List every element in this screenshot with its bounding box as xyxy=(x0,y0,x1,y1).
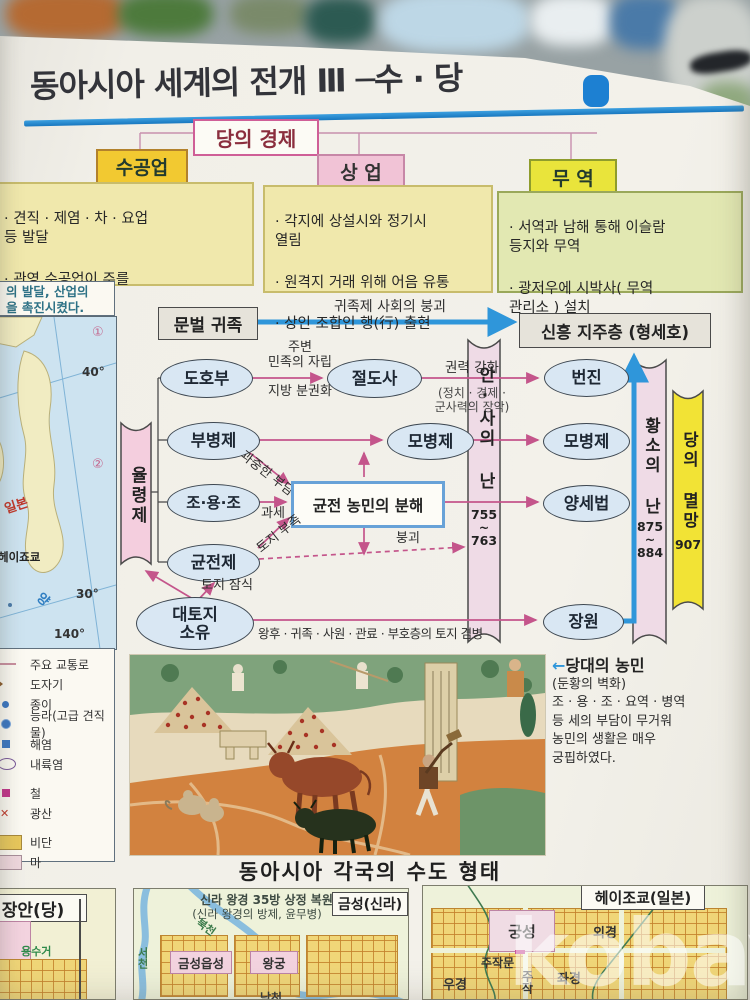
diagram-hwangso-years: 875 ~ 884 xyxy=(631,520,669,559)
heijokyo-palace-block: 궁성 xyxy=(489,910,555,952)
commerce-body: · 각지에 상설시와 정기시 열림 · 원격지 거래 위해 어음 유통 · 상인… xyxy=(263,185,493,293)
diagram-label-bonggoe: 붕괴 xyxy=(378,531,438,546)
heijokyo-left-capital-label: 좌경 xyxy=(557,968,581,987)
legend-label: 비단 xyxy=(30,834,52,851)
changan-panel: 장안(당) 용수거 xyxy=(0,888,116,1000)
diagram-label-gyeombyeong: 왕후 · 귀족 · 사원 · 관료 · 부호층의 토지 겸병 xyxy=(258,627,570,642)
legend-label: 주요 교통로 xyxy=(30,656,89,673)
diagram-node-gyunjeonje: 균전제 xyxy=(167,544,260,582)
heijokyo-gate-mark xyxy=(515,950,525,954)
trade-item: · 서역과 남해 통해 이슬람 등지와 무역 xyxy=(509,219,736,257)
legend-label: 철 xyxy=(30,785,41,802)
diagram-node-dohobu: 도호부 xyxy=(160,359,253,398)
legend-silk-swatch xyxy=(6,835,30,850)
left-arrow-icon: ← xyxy=(552,656,565,675)
trade-tab: 무 역 xyxy=(529,159,617,195)
background-blob xyxy=(6,0,126,40)
diagram-ribbon-yulryeongje: 율령제 xyxy=(122,438,150,553)
textbook-page: 동아시아 세계의 전개 Ⅲ ─수 · 당 xyxy=(0,0,750,1000)
diagram-node-sinheung: 신흥 지주층 (형세호) xyxy=(519,313,711,348)
capitals-heading: 동아시아 각국의 수도 형태 xyxy=(90,856,650,886)
legend-inland-salt-marker xyxy=(6,758,30,770)
heijokyo-right-capital-label: 우경 xyxy=(443,974,467,993)
diagram-myeolmang-year: 907 xyxy=(671,538,705,551)
geumseong-palace-block: 왕궁 xyxy=(250,951,298,974)
handicraft-body: · 견직 · 제염 · 차 · 요업 등 발달 · 관영 수공업이 주를 이룸 xyxy=(0,182,254,286)
background-blob xyxy=(530,0,615,46)
heijokyo-suzaku-label: 주작 xyxy=(519,970,536,994)
changan-canal-label: 용수거 xyxy=(21,943,51,959)
diagram-node-daetoji: 대토지 소유 xyxy=(136,597,254,650)
diagram-label-breakup: 귀족제 사회의 붕괴 xyxy=(290,299,490,316)
changan-wall-line xyxy=(79,899,81,1000)
legend-road-line xyxy=(6,663,30,666)
legend-row: 내륙염 xyxy=(4,754,114,774)
diagram-node-joyongjo: 조·용·조 xyxy=(167,484,260,522)
sidebar-caption-line: 의 발달, 산업의 xyxy=(6,284,114,300)
sidebar-caption-line: 을 촉진시켰다. xyxy=(6,300,114,316)
map-legend: 주요 교통로 도자기 종이 능라(고급 견직물) 해염 내륙염 철 ✕ 광산 비… xyxy=(0,648,115,862)
legend-label: 마 xyxy=(30,854,41,871)
heijokyo-panel: 궁성 헤이조쿄(일본) 주작문 외경 우경 좌경 주작 xyxy=(422,885,748,1000)
legend-label: 해염 xyxy=(30,736,52,753)
background-blob xyxy=(305,0,375,44)
legend-pottery-marker xyxy=(6,680,30,688)
legend-row: 주요 교통로 xyxy=(4,654,114,674)
mural-caption-line: 농민의 생활은 매우 xyxy=(552,731,748,749)
diagram-node-yangsebeop: 양세법 xyxy=(543,485,630,522)
geumseong-fort-block: 금성읍성 xyxy=(170,951,232,974)
legend-row: 도자기 xyxy=(4,674,114,694)
legend-iron-marker xyxy=(6,789,30,797)
legend-label: 도자기 xyxy=(30,676,63,693)
diagram-node-mobyeongje-post: 모병제 xyxy=(543,423,630,460)
economy-title-box: 당의 경제 xyxy=(193,119,319,156)
map-label-heijokyo: 헤이죠쿄 xyxy=(0,549,40,565)
geumseong-grid xyxy=(306,935,398,997)
handicraft-item: · 견직 · 제염 · 차 · 요업 등 발달 xyxy=(4,210,247,248)
diagram-label-jubyeon: 주변 민족의 자립 xyxy=(250,340,350,371)
commerce-item: · 각지에 상설시와 정기시 열림 xyxy=(275,213,486,251)
mural-caption-line: 궁핍하였다. xyxy=(552,750,748,768)
geumseong-panel: 금성읍성 왕궁 신라 왕경 35방 상정 복원도 (신라 왕경의 방제, 윤무병… xyxy=(133,888,409,1000)
mural-caption-line: 조 · 용 · 조 · 요역 · 병역 xyxy=(552,694,748,712)
commerce-item: · 상인 조합인 행(行) 출현 xyxy=(275,315,486,334)
diagram-ribbon-ansa: 안·사의 난 xyxy=(470,354,498,504)
map-lat-30: 30° xyxy=(76,587,99,601)
diagram-node-bunhae: 균전 농민의 분해 xyxy=(291,481,445,528)
trade-item: · 광저우에 시박사( 무역 관리소 ) 설치 xyxy=(509,280,736,318)
changan-title: 장안(당) xyxy=(0,894,87,922)
mural-caption-line: 등 세의 부담이 무거워 xyxy=(552,713,748,731)
background-blob xyxy=(230,0,310,34)
map-marker-1: ① xyxy=(92,325,104,340)
geumseong-south-stream-label: 남천 xyxy=(260,989,282,1000)
legend-paper-marker xyxy=(6,701,30,708)
commerce-item: · 원격지 거래 위해 어음 유통 xyxy=(275,274,486,293)
heijokyo-outer-capital-label: 외경 xyxy=(593,922,617,941)
changan-grid xyxy=(0,959,87,1000)
diagram-node-jangwon: 장원 xyxy=(543,604,624,640)
heijokyo-gate-label: 주작문 xyxy=(481,954,514,971)
map-lon-140: 140° xyxy=(54,627,85,641)
legend-row: 능라(고급 견직물) xyxy=(4,714,114,734)
legend-row: 철 xyxy=(4,783,114,803)
diagram-node-mobyeongje-pre: 모병제 xyxy=(387,423,474,460)
map-lat-40: 40° xyxy=(82,365,105,379)
diagram-node-beonjin: 번진 xyxy=(544,359,629,397)
heijokyo-title: 헤이조쿄(일본) xyxy=(581,885,705,910)
legend-row: ✕ 광산 xyxy=(4,803,114,823)
legend-row: 비단 xyxy=(4,832,114,852)
diagram-ribbon-hwangso: 황소의 난 xyxy=(635,402,663,532)
legend-hemp-swatch xyxy=(6,855,30,870)
handicraft-tab: 수공업 xyxy=(96,149,188,184)
legend-silk-cloth-marker xyxy=(6,719,30,729)
background-blob xyxy=(118,0,213,36)
mural-caption: ←당대의 농민 (둔황의 벽화) 조 · 용 · 조 · 요역 · 병역 등 세… xyxy=(552,652,748,768)
mural-image xyxy=(130,655,545,855)
legend-sea-salt-marker xyxy=(6,740,30,748)
sidebar-caption: 의 발달, 산업의 을 촉진시켰다. xyxy=(0,281,115,316)
mural-caption-line: (둔황의 벽화) xyxy=(552,676,748,694)
legend-label: 내륙염 xyxy=(30,756,63,773)
diagram-ribbon-myeolmang: 당의 멸망 xyxy=(675,418,701,543)
geumseong-west-stream-label: 서천 xyxy=(134,947,150,969)
legend-mine-marker: ✕ xyxy=(6,807,30,820)
background-blob xyxy=(380,0,530,52)
mural-caption-title: 당대의 농민 xyxy=(565,656,644,675)
geumseong-title: 금성(신라) xyxy=(332,892,408,916)
diagram-node-jeoldosa: 절도사 xyxy=(327,359,422,398)
diagram-label-tojijamsik: 토지 잠식 xyxy=(182,578,272,593)
commerce-tab: 상 업 xyxy=(317,154,405,189)
sidebar-map: ① 40° ② 일본 헤이죠쿄 양 30° 140° xyxy=(0,316,117,650)
legend-label: 광산 xyxy=(30,805,52,822)
diagram-node-munbeol: 문벌 귀족 xyxy=(158,307,258,340)
map-marker-2: ② xyxy=(92,457,104,472)
trade-body: · 서역과 남해 통해 이슬람 등지와 무역 · 광저우에 시박사( 무역 관리… xyxy=(497,191,743,293)
diagram-ansa-years: 755 ~ 763 xyxy=(466,508,502,547)
